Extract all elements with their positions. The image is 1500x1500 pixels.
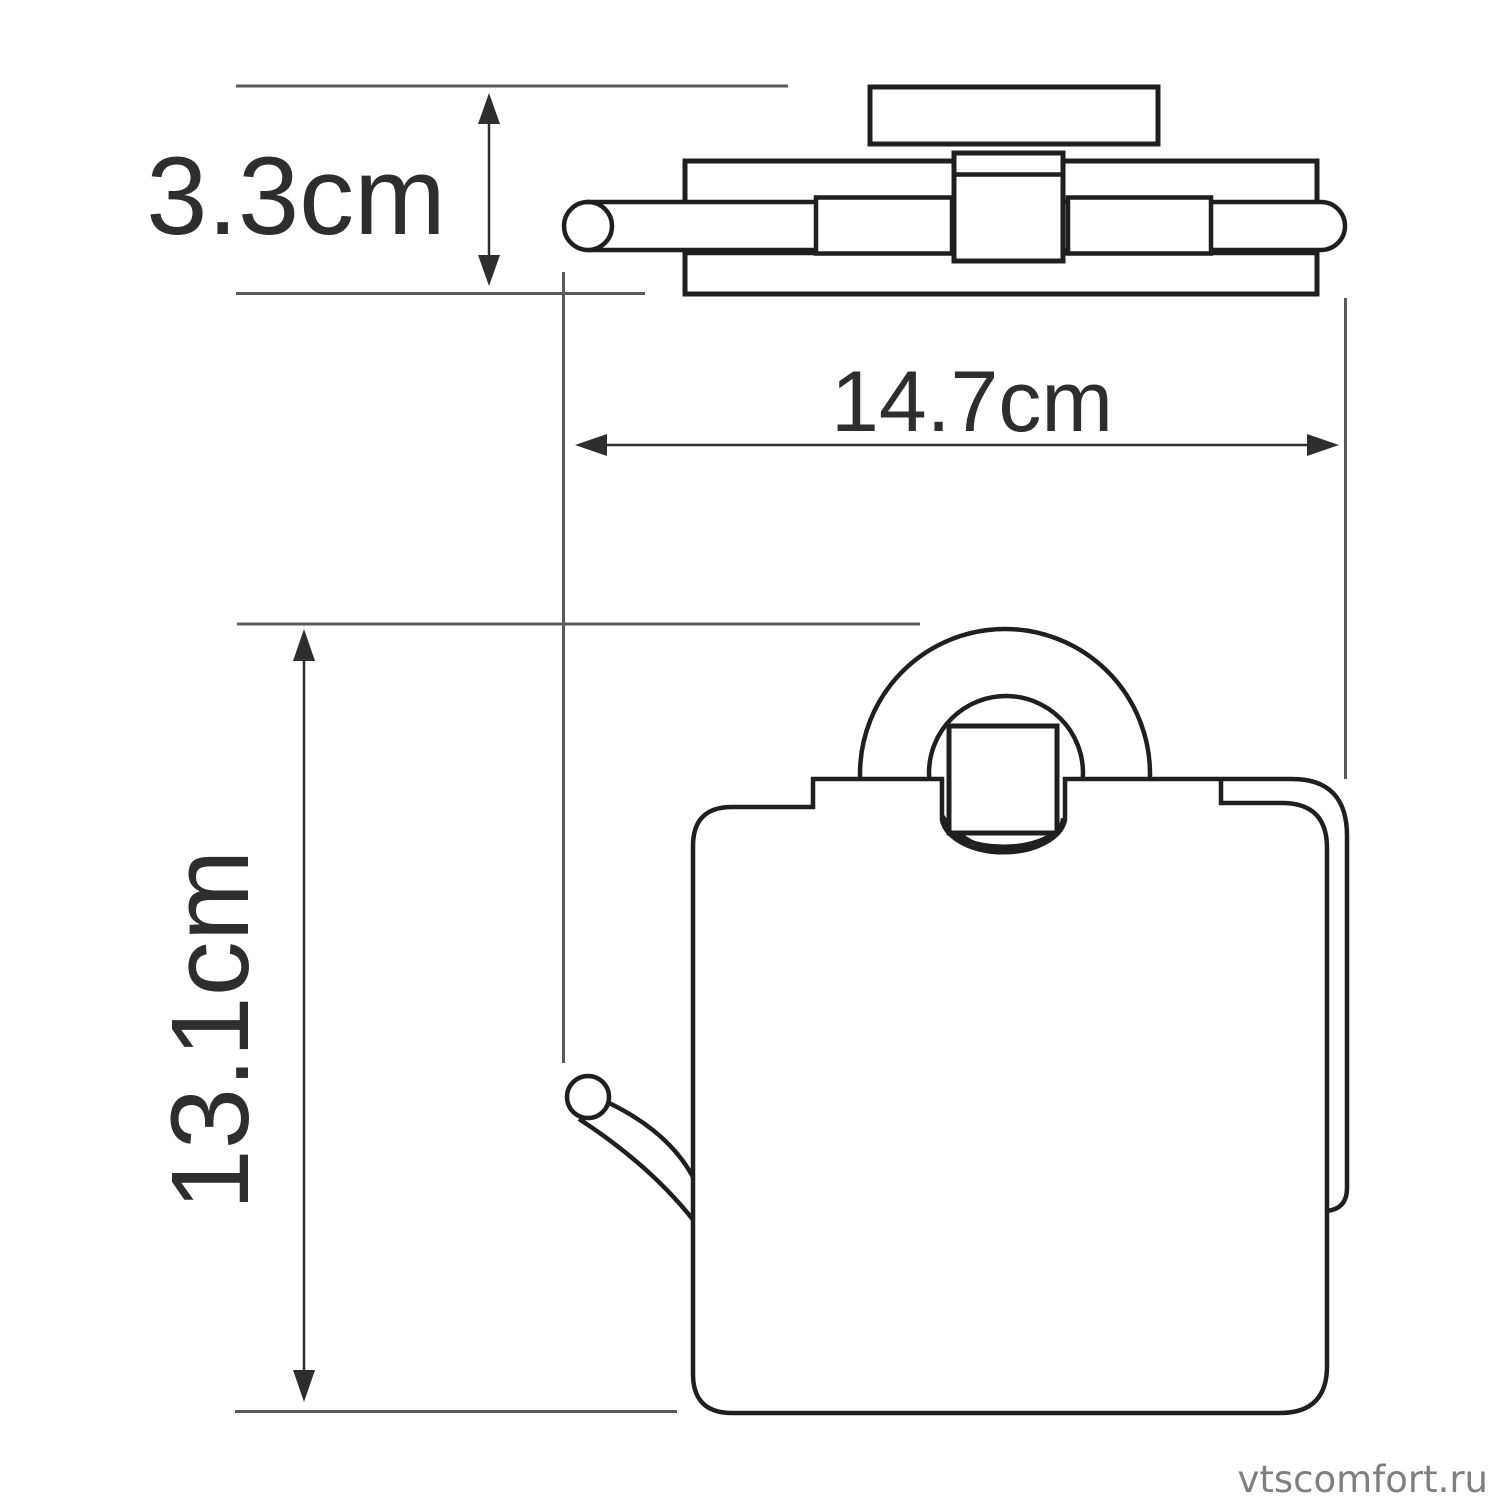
dim-arrow-up-icon [478,93,500,124]
depth-label: 3.3cm [146,135,446,258]
roll-stop-left [816,198,952,254]
watermark: vtscomfort.ru [1237,1458,1488,1500]
mount-block-front-view [949,726,1057,833]
hook-ball-tip [567,1076,609,1118]
wall-plate-top-view [870,87,1158,144]
dim-arrow-up-icon [293,629,315,661]
dim-arrow-left-icon [575,434,607,456]
height-label: 13.1cm [149,850,272,1211]
roll-stop-right [1068,198,1211,254]
hook-arm-upper [607,1102,694,1179]
rod-end-cap [564,202,612,250]
toilet-paper-holder-drawing: 3.3cm 14.7cm 13.1cm [0,0,1500,1500]
hook-arm-lower [579,1119,694,1221]
technical-drawing-page: 3.3cm 14.7cm 13.1cm [0,0,1500,1500]
dim-arrow-down-icon [293,1370,315,1402]
width-label: 14.7cm [831,354,1113,450]
cover-outline [693,779,1347,1413]
front-view [567,629,1347,1413]
dim-arrow-down-icon [478,255,500,286]
mount-block-top-view [954,153,1063,261]
top-view [564,87,1345,294]
dim-arrow-right-icon [1307,434,1339,456]
